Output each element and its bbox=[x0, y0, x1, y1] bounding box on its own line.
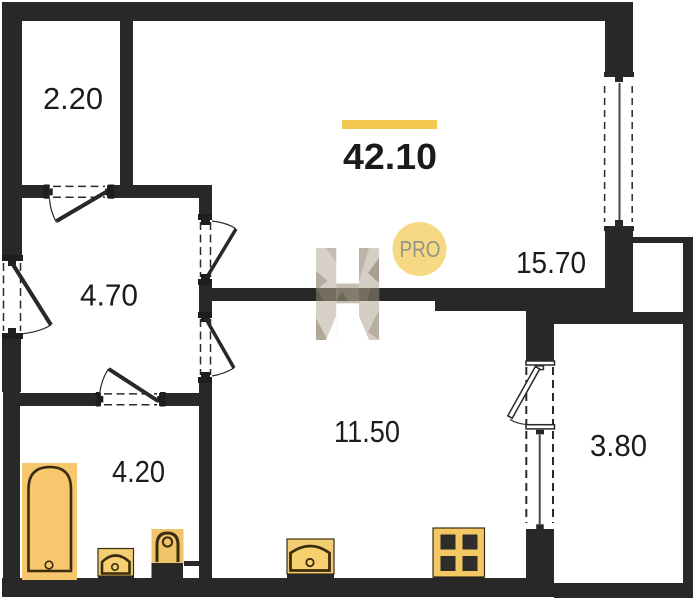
svg-text:PRO: PRO bbox=[400, 236, 441, 262]
svg-text:3.80: 3.80 bbox=[590, 428, 647, 463]
svg-text:2.20: 2.20 bbox=[43, 81, 103, 116]
svg-text:4.70: 4.70 bbox=[80, 278, 138, 313]
svg-text:15.70: 15.70 bbox=[516, 245, 586, 280]
svg-text:4.20: 4.20 bbox=[112, 454, 165, 489]
svg-text:42.10: 42.10 bbox=[343, 136, 437, 177]
svg-text:11.50: 11.50 bbox=[334, 414, 400, 449]
